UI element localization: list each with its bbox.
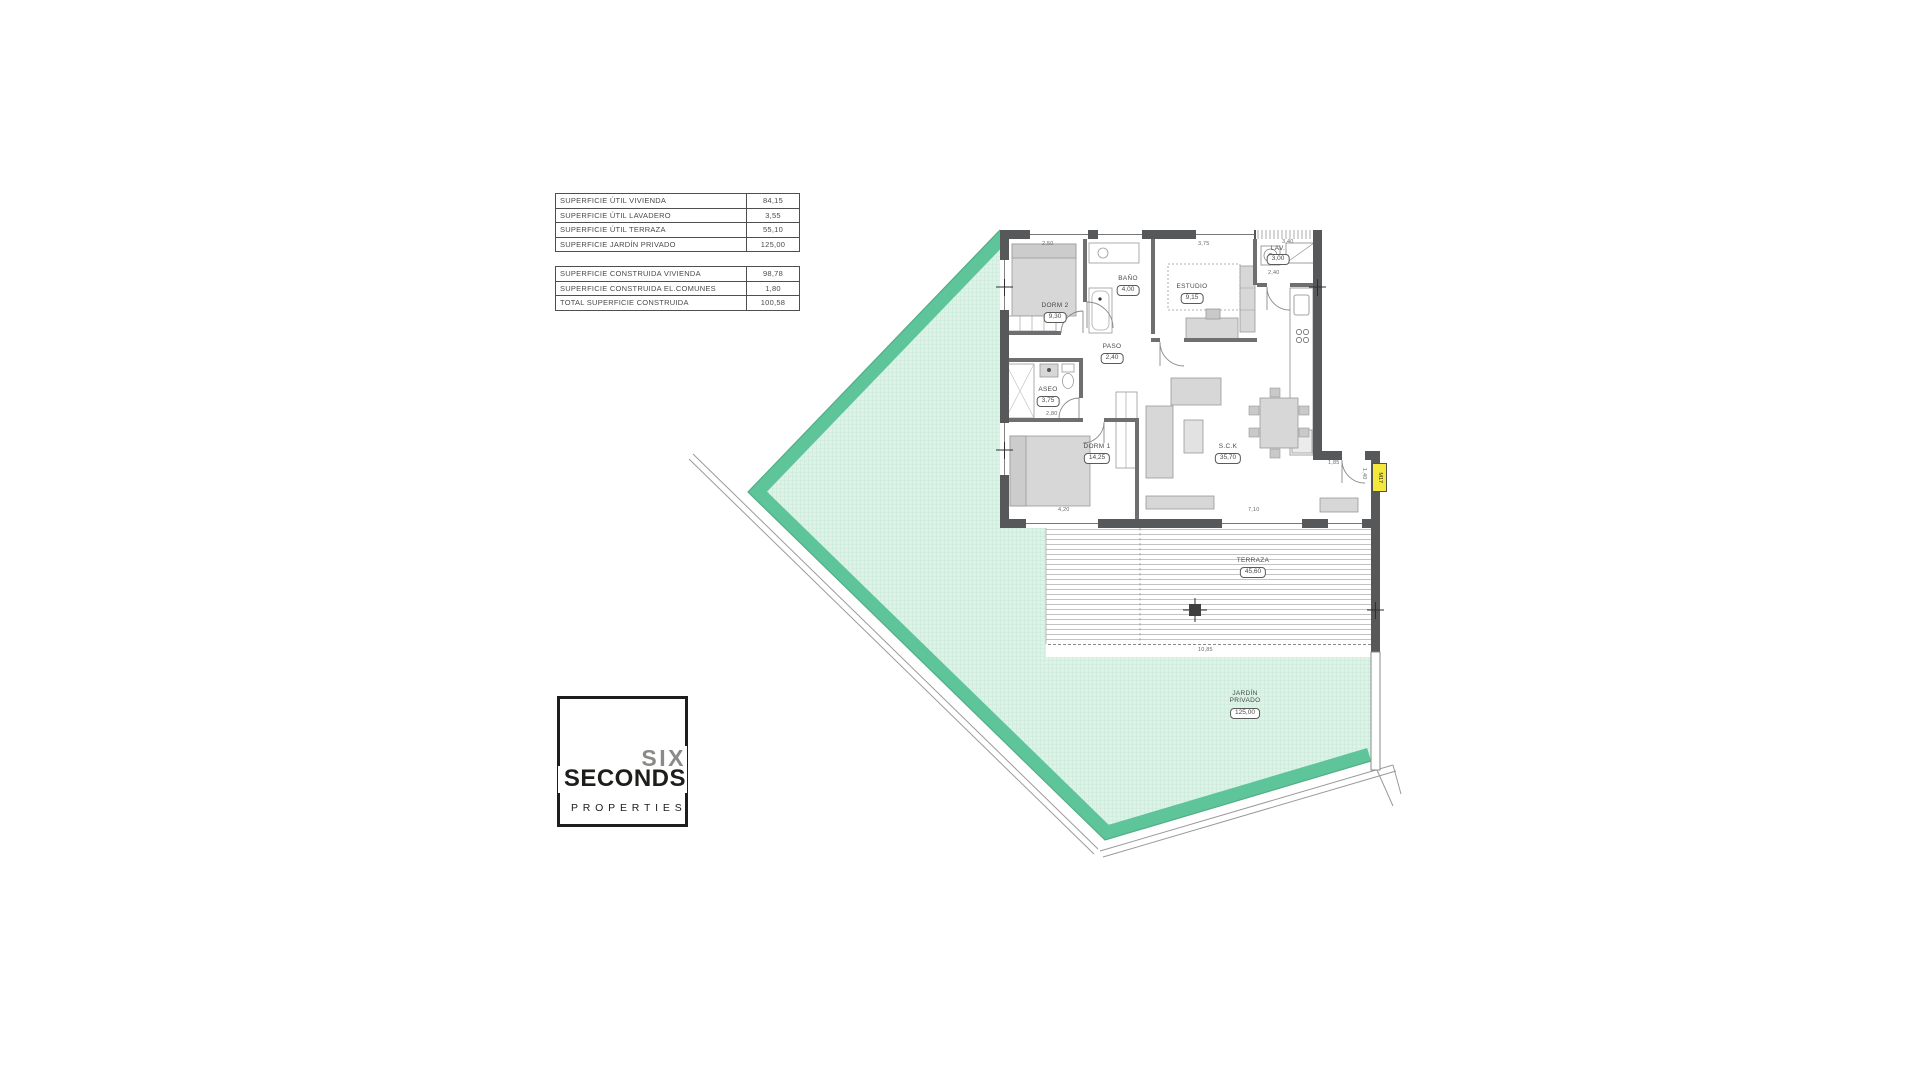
area-badge-paso: 2,40 [1101,353,1124,364]
room-label-paso: PASO [1103,343,1122,350]
room-label-bano: BAÑO [1118,275,1138,282]
room-label-estudio: ESTUDIO [1177,283,1208,290]
terrace-deck [1046,528,1371,645]
room-label-aseo: ASEO [1038,386,1057,393]
dimension-label: 7,10 [1248,508,1260,514]
area-badge-aseo: 3,75 [1037,396,1060,407]
area-badge-jardin: 125,00 [1230,708,1260,719]
dimension-label: 1,85 [1328,461,1340,467]
floor-plan-drawing [0,0,1920,1080]
dimension-label: 10,85 [1198,648,1213,654]
dimension-label: 3,75 [1198,242,1210,248]
room-label-sck: S.C.K [1219,443,1237,450]
dimension-label: 2,80 [1046,412,1058,418]
dimension-label: 4,20 [1058,508,1070,514]
right-boundary-wall [1371,528,1380,770]
dimension-label: 3,40 [1282,240,1294,246]
room-label-terraza: TERRAZA [1237,557,1269,564]
floorplan-sheet: SUPERFICIE ÚTIL VIVIENDA 84,15 SUPERFICI… [0,0,1920,1080]
room-label-jardin: JARDÍN PRIVADO [1225,690,1265,705]
dimension-label: 1,40 [1361,468,1367,480]
door-code-badge: M17 [1372,463,1387,492]
area-badge-terraza: 45,60 [1240,567,1266,578]
area-badge-dorm2: 9,30 [1044,312,1067,323]
room-label-dorm1: DORM 1 [1083,443,1110,450]
area-badge-estudio: 9,15 [1181,293,1204,304]
dimension-label: 2,50 [1042,242,1054,248]
room-label-dorm2: DORM 2 [1041,302,1068,309]
area-badge-bano: 4,00 [1117,285,1140,296]
area-badge-sck: 35,70 [1215,453,1241,464]
room-label-lav: LAV. [1271,245,1285,252]
dimension-label: 2,40 [1268,271,1280,277]
area-badge-dorm1: 14,25 [1084,453,1110,464]
area-badge-lav: 3,00 [1267,254,1290,265]
